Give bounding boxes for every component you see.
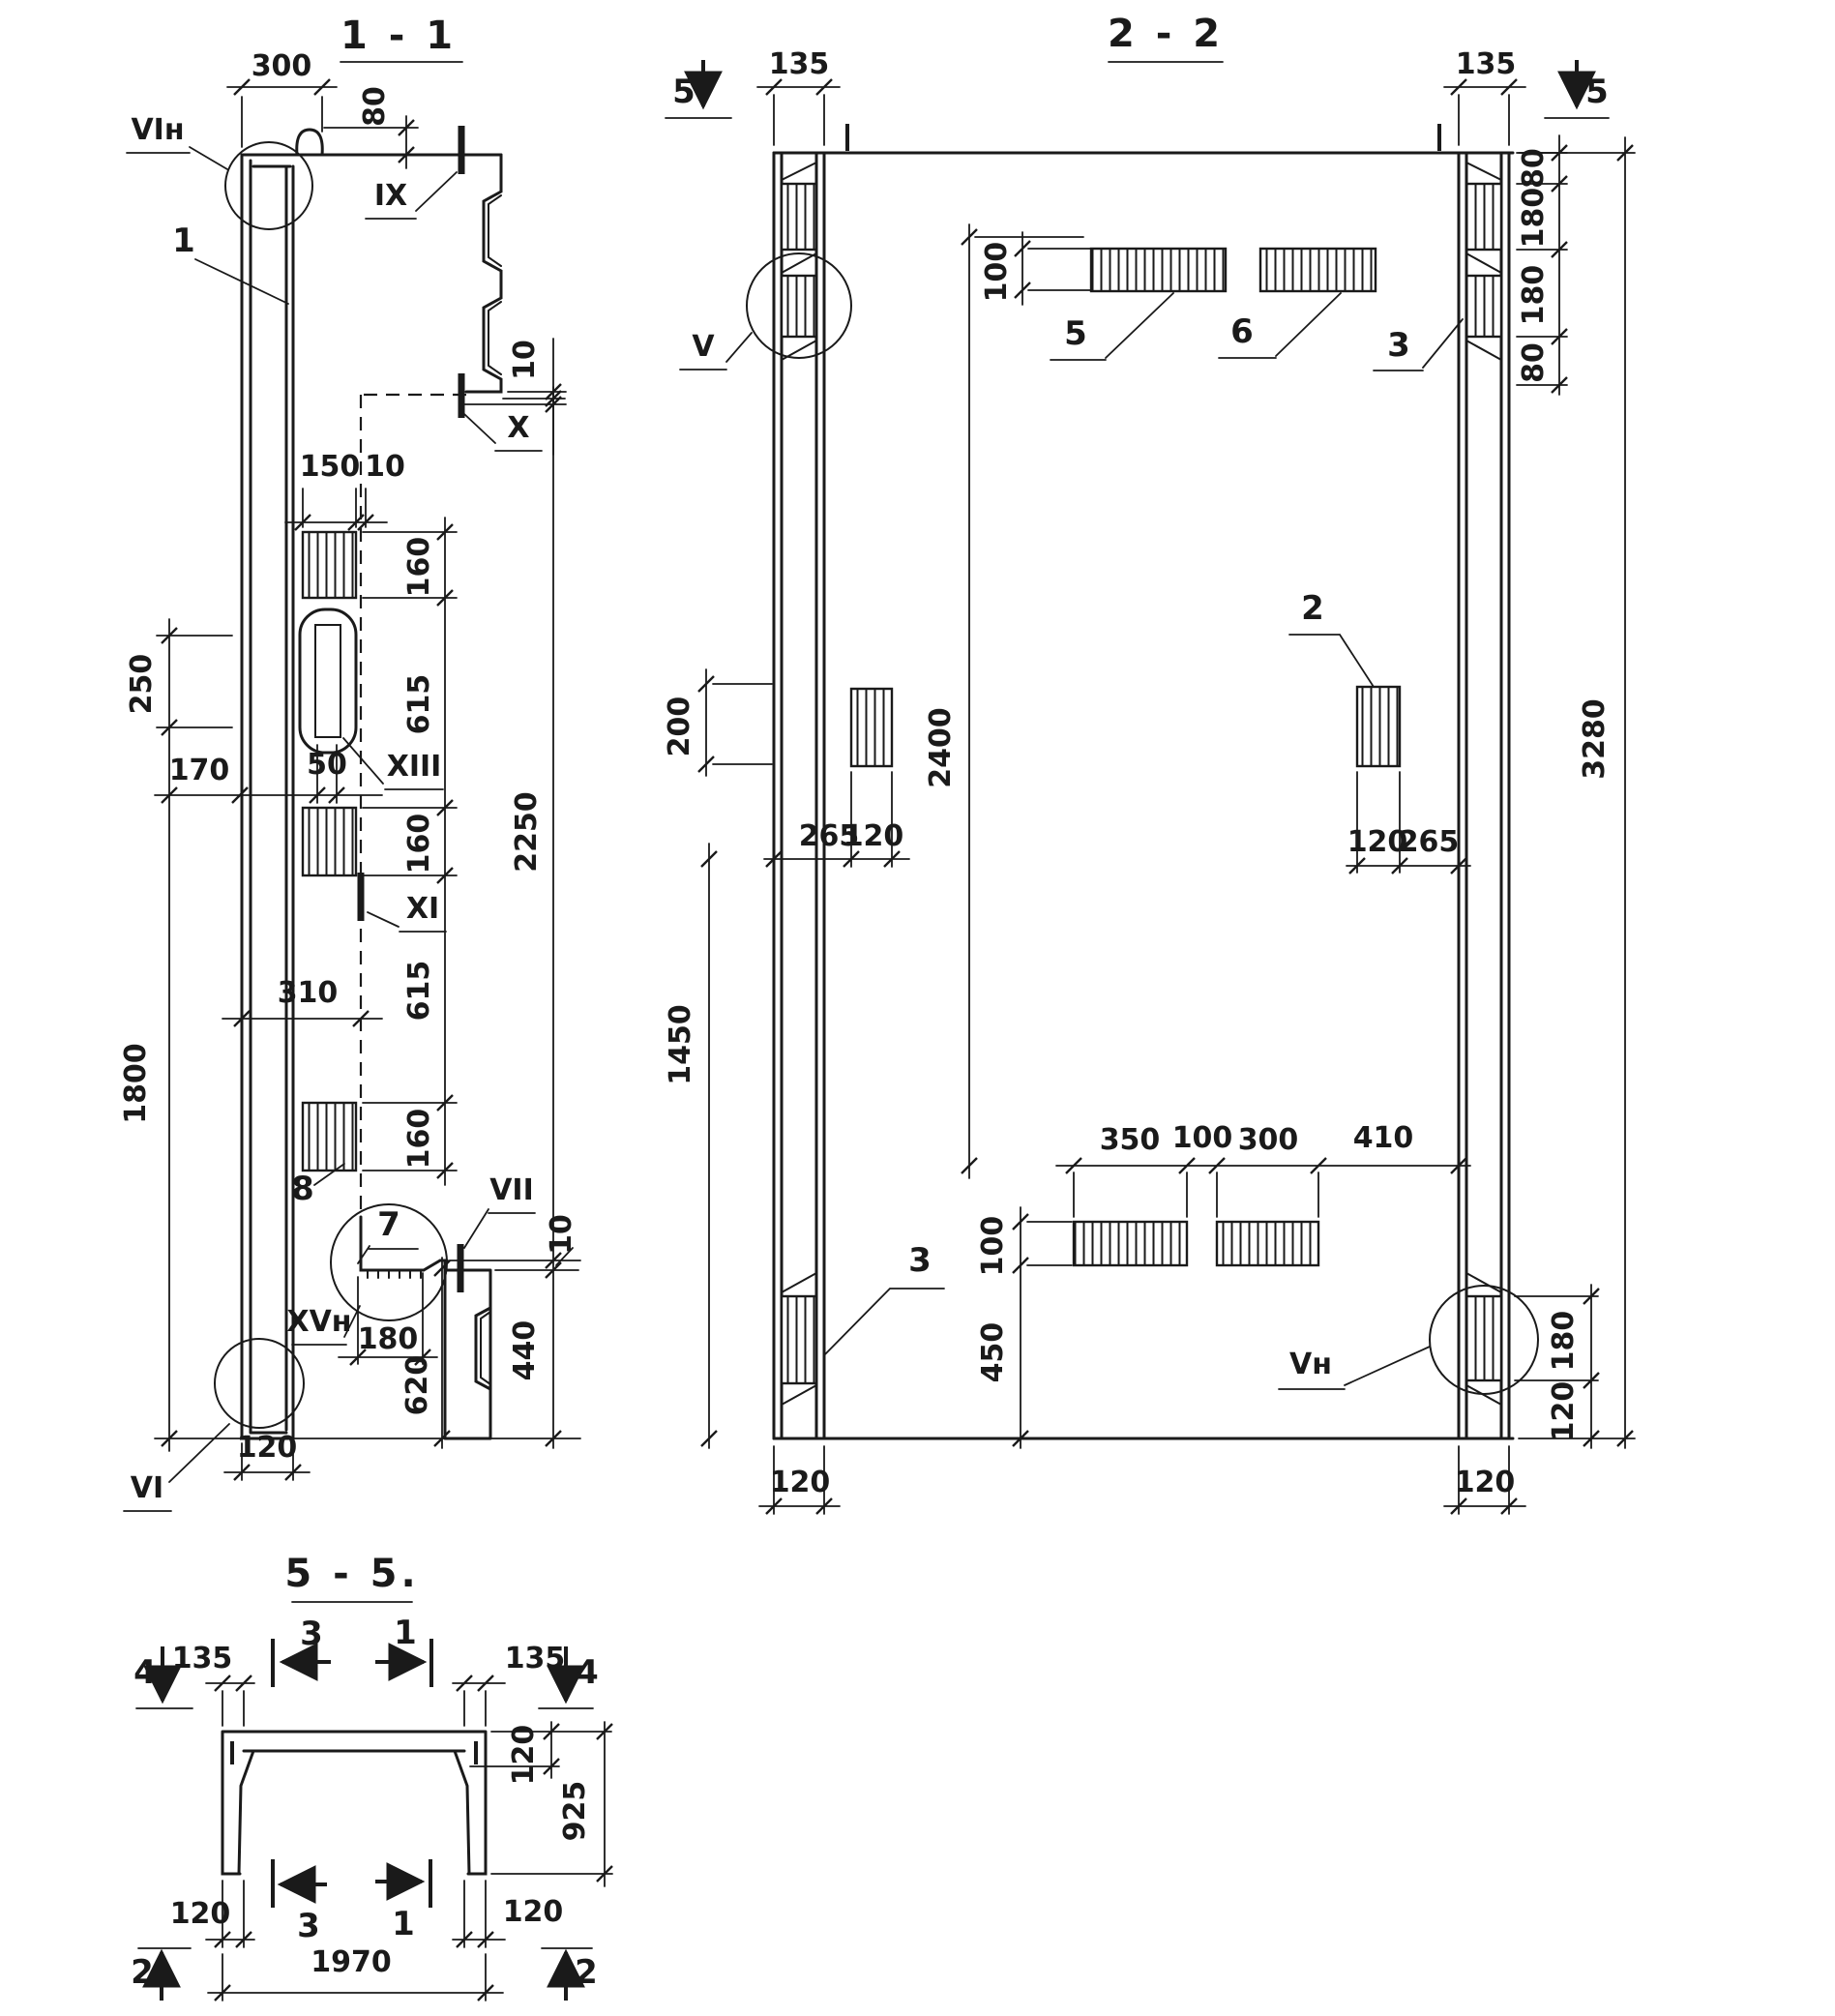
dim-80: 80 xyxy=(358,86,392,127)
detail-circle-vi xyxy=(215,1339,304,1428)
dim-135l: 135 xyxy=(769,47,830,81)
dim-440: 440 xyxy=(508,1320,542,1381)
right-column xyxy=(1459,153,1509,1438)
label-3-top: 3 xyxy=(1387,326,1410,365)
dim-1800: 1800 xyxy=(119,1043,153,1124)
dim-150: 150 xyxy=(300,450,361,484)
slot-xiii-inner xyxy=(315,625,340,737)
anchor-block xyxy=(782,276,816,337)
dim-620: 620 xyxy=(400,1355,434,1416)
label-ix: IX xyxy=(374,179,407,213)
right-column-diagonals xyxy=(1466,163,1501,1405)
label-vii: VII xyxy=(489,1173,534,1207)
channel-outline xyxy=(222,1732,486,1874)
label-3-bottom: 3 xyxy=(908,1241,932,1280)
dim-300: 300 xyxy=(1238,1123,1299,1157)
leader-7 xyxy=(358,1246,418,1263)
dim-2400: 2400 xyxy=(924,707,958,788)
label-xiii: XIII xyxy=(387,750,442,784)
corner-bars xyxy=(232,1741,476,1764)
dim-50: 50 xyxy=(307,748,347,782)
dim-120: 120 xyxy=(237,1431,298,1465)
label-vin: VIн xyxy=(131,113,184,147)
label-1: 1 xyxy=(172,222,195,260)
dim-1450: 1450 xyxy=(664,1004,697,1085)
dim-100t-lines xyxy=(1022,232,1091,305)
dim-120-col-left: 120 xyxy=(770,1466,831,1499)
label-8: 8 xyxy=(291,1170,314,1208)
loop-stubs xyxy=(847,124,1439,151)
dim-120-top: 120 xyxy=(507,1725,541,1786)
anchor-block xyxy=(1466,184,1501,250)
top-block-right-edge xyxy=(466,155,501,392)
label-v: V xyxy=(692,330,715,364)
anchor-block xyxy=(782,1296,816,1383)
label-xi: XI xyxy=(406,892,439,926)
dim-450: 450 xyxy=(976,1322,1010,1383)
section-title: 2 - 2 xyxy=(1108,12,1224,56)
mark-2-left: 2 xyxy=(131,1953,154,1992)
dim-310: 310 xyxy=(278,976,339,1010)
anchor-block xyxy=(782,184,816,250)
label-2: 2 xyxy=(1301,589,1324,628)
dim-170: 170 xyxy=(169,754,230,787)
embed-plate xyxy=(1217,1222,1318,1265)
dim-10b: 10 xyxy=(365,450,405,484)
drawing-sheet: 1 - 1 300 80 VIн 1 IX X 10 150 10 160 61… xyxy=(0,0,1835,2016)
label-x: X xyxy=(507,411,529,445)
dim-180: 180 xyxy=(358,1322,419,1356)
embed-plate-5 xyxy=(1091,249,1226,291)
hidden-web-line xyxy=(361,395,466,1217)
dim-2250: 2250 xyxy=(510,791,544,873)
mark-4-right: 4 xyxy=(576,1653,599,1692)
dim-200: 200 xyxy=(663,697,696,757)
bottom-keyway xyxy=(476,1308,490,1389)
dim-180-right: 180 xyxy=(1547,1311,1581,1372)
leader-2 xyxy=(1289,635,1374,687)
dim-2250-440-lines xyxy=(450,387,580,1448)
dim-2400-line xyxy=(969,224,1083,1178)
dim-100-top: 100 xyxy=(980,242,1014,303)
embed-plate xyxy=(851,689,892,766)
leader-x xyxy=(464,414,542,451)
dim-120br-lines xyxy=(453,1881,505,1947)
embed-plate xyxy=(1074,1222,1187,1265)
channel-inner-legs xyxy=(239,1751,469,1874)
label-7: 7 xyxy=(377,1205,400,1244)
mark-2-right: 2 xyxy=(575,1953,598,1992)
dim-265r: 265 xyxy=(1399,825,1460,859)
leader-vin xyxy=(127,147,227,169)
dim-160a: 160 xyxy=(402,537,436,598)
dim-410: 410 xyxy=(1353,1121,1414,1155)
section-2-2: 2 - 2 5 135 135 5 80 180 180 80 V 100 5 … xyxy=(663,12,1635,1514)
dim-160c: 160 xyxy=(402,1109,436,1170)
mark-3-bottom: 3 xyxy=(297,1907,320,1945)
rib-walls xyxy=(242,155,293,1438)
embed-plate-8 xyxy=(303,1103,356,1171)
dim-135l-lines xyxy=(206,1683,254,1726)
dim-10c: 10 xyxy=(545,1214,578,1255)
cut-label-5-right: 5 xyxy=(1585,73,1609,111)
mark-1-bottom: 1 xyxy=(392,1905,415,1943)
section-title: 1 - 1 xyxy=(340,14,457,58)
dim-120t-lines xyxy=(470,1722,611,1778)
dim-180b: 180 xyxy=(1517,265,1551,326)
dim-100-bottom: 100 xyxy=(976,1216,1010,1277)
dim-100-mid: 100 xyxy=(1172,1121,1233,1155)
dim-10a: 10 xyxy=(508,340,542,380)
dim-80a: 80 xyxy=(1517,148,1551,189)
leader-v xyxy=(680,333,752,370)
dim-200-lines xyxy=(706,669,772,776)
leader-vii xyxy=(464,1209,535,1248)
dim-300: 300 xyxy=(252,49,312,83)
dim-100-450-lines xyxy=(1021,1207,1072,1448)
dim-615b: 615 xyxy=(402,961,436,1022)
embed-plate-2 xyxy=(1357,687,1400,766)
label-vi: VI xyxy=(131,1471,163,1505)
mark-4-left: 4 xyxy=(133,1653,157,1692)
dim-150-10-lines xyxy=(285,489,387,527)
slot-xiii-outer xyxy=(300,609,356,753)
dim-135l: 135 xyxy=(172,1642,233,1675)
dim-row-bottom-lines xyxy=(1056,1166,1470,1217)
left-column-diagonals xyxy=(782,163,816,1405)
dim-3280: 3280 xyxy=(1578,698,1612,780)
dim-135l-lines xyxy=(757,87,840,145)
section-title: 5 - 5. xyxy=(284,1552,419,1596)
section-5-5: 5 - 5. 3 1 4 135 135 4 120 925 3 1 120 1… xyxy=(131,1552,612,2001)
anchor-block xyxy=(1466,276,1501,337)
dim-615a: 615 xyxy=(402,674,436,735)
label-vn: Vн xyxy=(1289,1348,1332,1381)
dim-80b: 80 xyxy=(1517,342,1551,383)
dim-120-bottom-left: 120 xyxy=(170,1897,231,1931)
keyway-inner-lines xyxy=(488,195,501,374)
cut-label-5-left: 5 xyxy=(672,73,696,111)
dim-120-right-bottom: 120 xyxy=(1547,1381,1581,1442)
dim-135r-lines xyxy=(1444,87,1525,145)
bottom-right-block xyxy=(445,1260,490,1438)
lifting-loop xyxy=(297,130,322,155)
dim-350: 350 xyxy=(1100,1123,1161,1157)
dim-250-1800-lines xyxy=(157,619,232,1451)
dim-120l: 120 xyxy=(844,819,904,853)
label-xvn: XVн xyxy=(286,1305,351,1339)
embed-plate xyxy=(303,532,356,598)
dim-120-bottom-right: 120 xyxy=(503,1895,564,1929)
dim-1970: 1970 xyxy=(311,1945,392,1979)
dim-180a: 180 xyxy=(1517,188,1551,249)
label-6: 6 xyxy=(1230,312,1254,351)
dim-135r: 135 xyxy=(1456,47,1517,81)
embed-plate-6 xyxy=(1260,249,1376,291)
dim-925: 925 xyxy=(558,1781,592,1842)
dim-3280-lines xyxy=(1519,137,1635,1448)
dim-160b: 160 xyxy=(402,814,436,875)
embed-plate xyxy=(303,808,356,875)
mark-1-top: 1 xyxy=(394,1614,417,1652)
mark-3-top: 3 xyxy=(300,1615,323,1653)
label-5: 5 xyxy=(1064,314,1087,353)
dim-135r: 135 xyxy=(505,1642,566,1675)
dim-120-col-right: 120 xyxy=(1455,1466,1516,1499)
leader-3-bottom xyxy=(825,1289,944,1354)
dim-250: 250 xyxy=(125,654,159,715)
anchor-block xyxy=(1466,1296,1501,1380)
left-column xyxy=(774,153,824,1438)
engineering-drawing: 1 - 1 300 80 VIн 1 IX X 10 150 10 160 61… xyxy=(0,0,1835,2016)
section-1-1: 1 - 1 300 80 VIн 1 IX X 10 150 10 160 61… xyxy=(119,14,580,1511)
